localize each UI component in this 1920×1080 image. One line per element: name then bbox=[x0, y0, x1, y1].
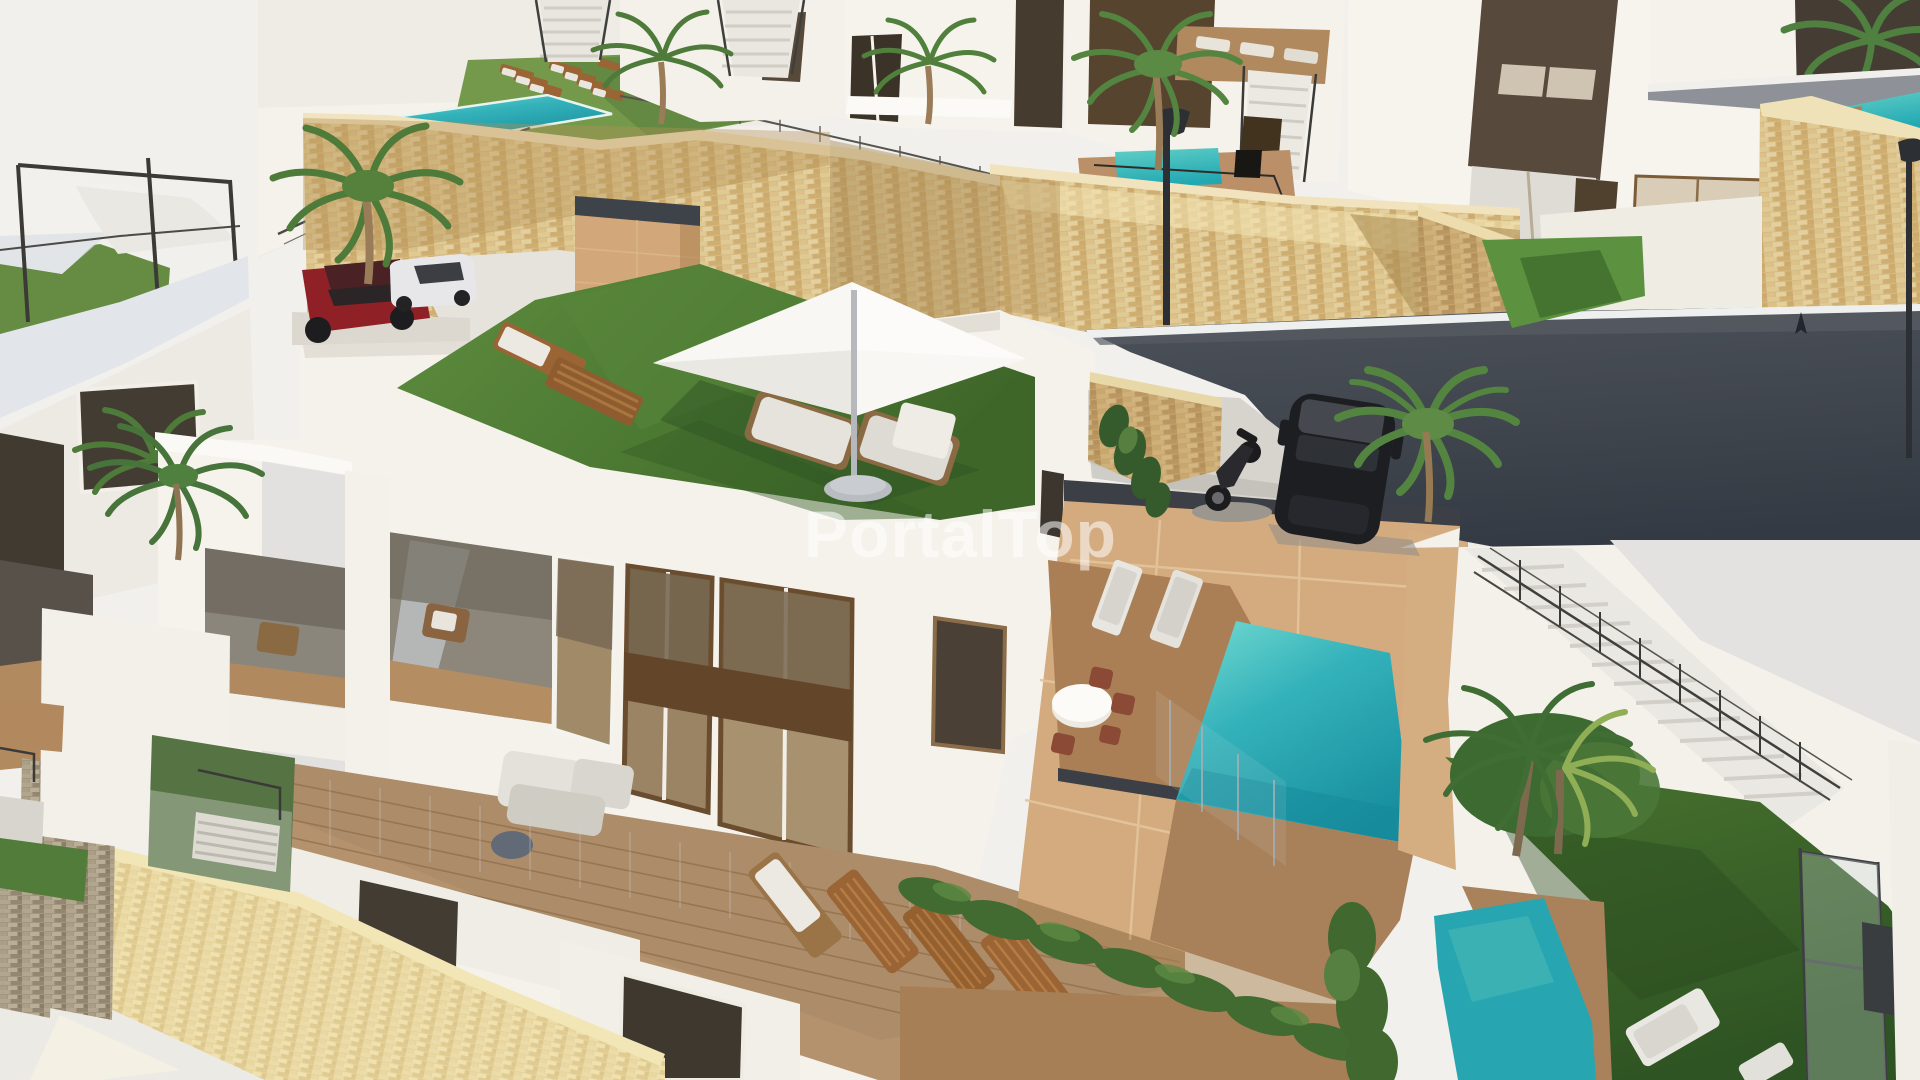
svg-text:PortalTop: PortalTop bbox=[804, 497, 1116, 571]
